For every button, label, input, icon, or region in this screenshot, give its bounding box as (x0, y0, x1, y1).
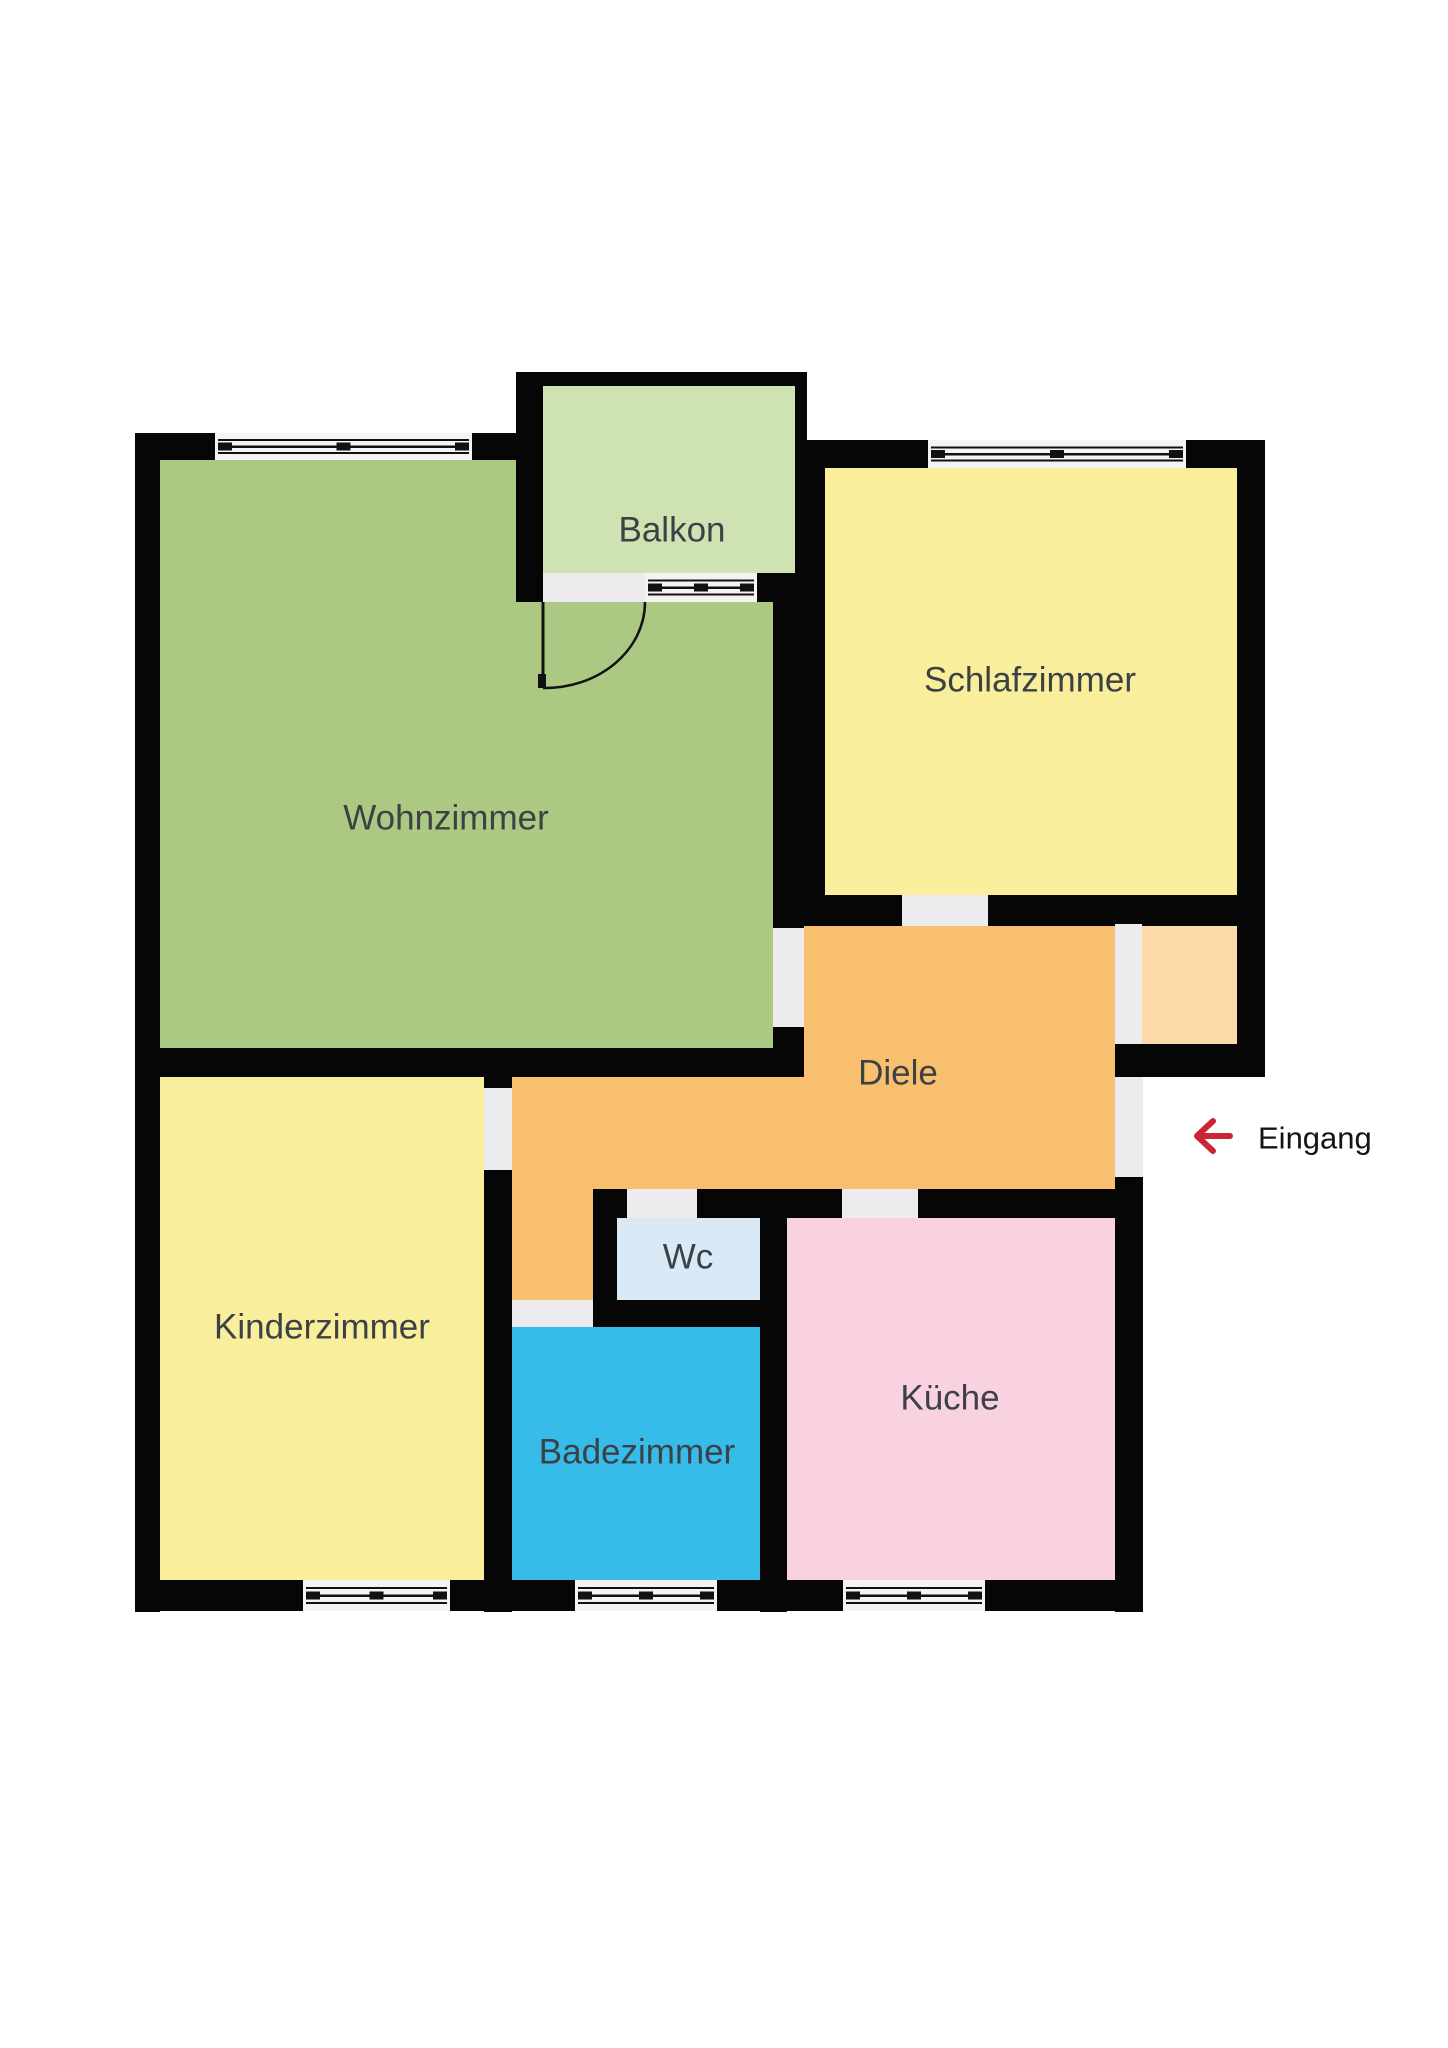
wall-segment (593, 1300, 760, 1327)
door-opening (773, 928, 804, 1027)
floor-plan-page: Wohnzimmer Balkon Schlafzimmer Diele Kin… (0, 0, 1448, 2048)
door-opening (543, 573, 645, 602)
window-tick (639, 1592, 653, 1600)
room-label-wc: Wc (663, 1238, 714, 1277)
wall-segment (516, 372, 807, 386)
room-label-balkon: Balkon (618, 511, 725, 550)
window-tick (1050, 450, 1064, 458)
window-tick (578, 1592, 592, 1600)
wall-segment (795, 386, 807, 440)
window-tick (370, 1592, 384, 1600)
window-tick (218, 443, 232, 451)
window-line (306, 1602, 447, 1604)
window-tick (337, 443, 351, 451)
window-tick (455, 443, 469, 451)
door-opening (1115, 924, 1142, 1044)
wall-segment (1237, 440, 1265, 1072)
door-opening (902, 895, 988, 926)
window-tick (968, 1592, 982, 1600)
window-tick (740, 584, 754, 592)
wall-segment (795, 440, 928, 468)
window-tick (694, 584, 708, 592)
window-tick (433, 1592, 447, 1600)
window-line (846, 1587, 982, 1589)
window (645, 573, 757, 602)
window (575, 1580, 717, 1611)
window-line (578, 1602, 714, 1604)
window-line (931, 460, 1183, 462)
balcony-door-leaf-cap (538, 674, 546, 688)
window (928, 440, 1186, 468)
wall-segment (760, 1189, 787, 1612)
window-tick (907, 1592, 921, 1600)
wall-segment (135, 433, 160, 1612)
window-tick (700, 1592, 714, 1600)
door-opening (484, 1088, 512, 1170)
window-line (578, 1587, 714, 1589)
room-label-schlafzimmer: Schlafzimmer (924, 661, 1136, 700)
window-tick (306, 1592, 320, 1600)
window (303, 1580, 450, 1611)
door-opening (1115, 1077, 1143, 1177)
entrance-label: Eingang (1258, 1121, 1372, 1156)
door-opening (842, 1189, 918, 1218)
window-line (931, 446, 1183, 448)
room-storage-nook (1142, 924, 1237, 1044)
room-label-wohnzimmer: Wohnzimmer (343, 799, 549, 838)
room-fills (160, 386, 1237, 1580)
wall-segment (135, 1048, 804, 1077)
window-tick (648, 584, 662, 592)
wall-segment (1115, 1177, 1143, 1612)
window-line (648, 593, 754, 595)
wall-segment (1115, 1044, 1265, 1077)
room-label-kueche: Küche (900, 1379, 999, 1418)
wall-segment (773, 602, 825, 897)
window (215, 433, 472, 460)
window (843, 1580, 985, 1611)
window-tick (931, 450, 945, 458)
room-label-kinderzimmer: Kinderzimmer (214, 1308, 430, 1347)
room-label-badezimmer: Badezimmer (539, 1433, 736, 1472)
wall-segment (773, 895, 1265, 926)
wall-segment (757, 573, 825, 602)
room-label-diele: Diele (858, 1054, 938, 1093)
window-tick (1169, 450, 1183, 458)
floor-plan: Wohnzimmer Balkon Schlafzimmer Diele Kin… (0, 0, 1448, 2048)
window-line (846, 1602, 982, 1604)
window-line (648, 580, 754, 582)
door-opening (627, 1189, 697, 1218)
window-line (218, 452, 469, 454)
window-tick (846, 1592, 860, 1600)
door-opening (512, 1300, 593, 1327)
window-line (218, 439, 469, 441)
window-line (306, 1587, 447, 1589)
wall-segment (516, 372, 543, 602)
